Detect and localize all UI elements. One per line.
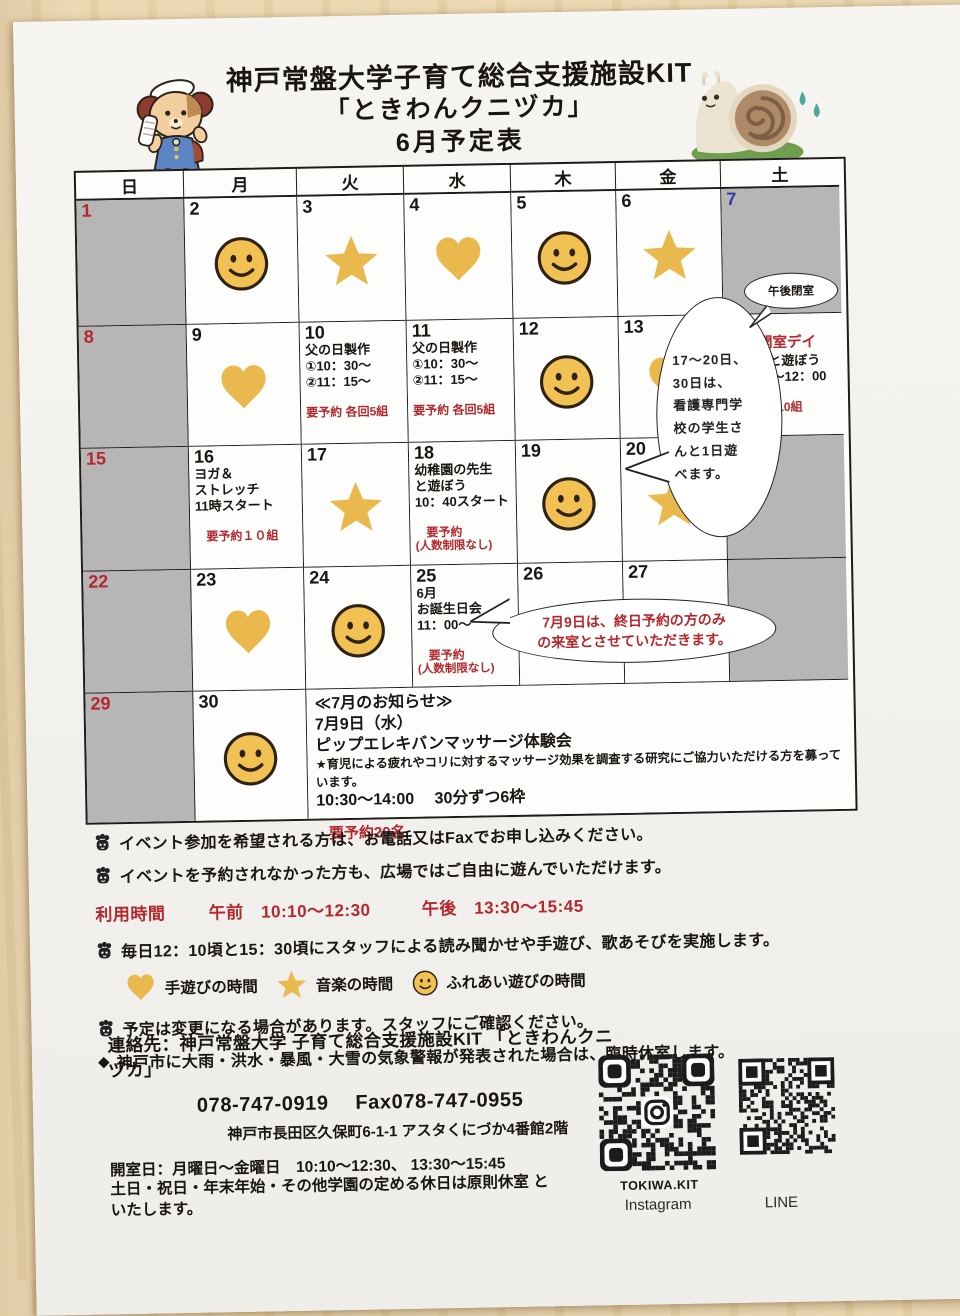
smiley-icon: [411, 969, 438, 996]
day-number: 11: [412, 321, 431, 341]
calendar-cell-8: 8: [79, 325, 189, 449]
event-line: 11時スタート: [192, 497, 301, 515]
event-line: (人数制限なし): [415, 661, 518, 677]
activity-icon-wrap: [514, 317, 620, 440]
smiley-icon: [539, 474, 598, 533]
heart-icon: [216, 360, 271, 415]
day-number: 15: [86, 449, 106, 469]
speech-bubble-tail: [470, 593, 511, 628]
opening-hours-line: 利用時間 午前 10:10～12:30 午後 13:30～15:45: [95, 885, 925, 925]
weekday-header-木: 木: [511, 163, 616, 193]
event-line: ②11：15～: [409, 371, 512, 389]
weekday-header-水: 水: [404, 165, 511, 195]
contact-name: 連絡先：神戸常盤大学 子育て総合支援施設KIT 「ときわんクニヅカ」: [108, 1023, 629, 1083]
calendar-cell-9: 9: [187, 323, 302, 447]
note-row: 毎日12：10頃と15：30頃にスタッフによる読み聞かせや手遊び、歌あそびを実施…: [96, 923, 926, 962]
activity-icon-wrap: [616, 189, 722, 316]
star-icon: [640, 226, 699, 285]
smiley-icon: [329, 601, 388, 660]
heart-icon: [431, 232, 486, 287]
smiley-icon: [221, 729, 280, 788]
legend-label: 音楽の時間: [316, 972, 394, 995]
calendar-cell-19: 19: [516, 439, 623, 564]
calendar-cell-15: 15: [81, 447, 191, 572]
calendar-cell-29: 29: [85, 692, 195, 823]
weekday-header-月: 月: [184, 169, 297, 199]
event-line: 要予約１０組: [192, 527, 301, 544]
calendar-cell-2: 2: [184, 197, 299, 325]
calendar-cell-4: 4: [404, 193, 513, 321]
instagram-label: Instagram: [625, 1196, 692, 1214]
speech-oval-tail: [747, 305, 773, 329]
weekday-header-土: 土: [721, 159, 839, 189]
bubble-line: の来室とさせていただきます。: [537, 629, 732, 653]
event-line: ①10：30～: [302, 357, 405, 375]
activity-icon-wrap: [184, 197, 298, 324]
note-text: 毎日12：10頃と15：30頃にスタッフによる読み聞かせや手遊び、歌あそびを実施…: [121, 926, 780, 962]
day-number: 18: [414, 443, 434, 463]
activity-icon-wrap: [191, 568, 305, 691]
weekday-header-金: 金: [616, 161, 721, 191]
activity-icon-wrap: [304, 566, 412, 689]
contact-address: 神戸市長田区久保町6-1-1 アスタくにづか4番館2階: [227, 1116, 629, 1144]
event-line: 要予約 各回5組: [303, 403, 406, 420]
weekday-header-日: 日: [76, 171, 184, 201]
smiley-icon: [212, 234, 271, 293]
july-notice-cell: ≪7月のお知らせ≫7月9日（水）ピップエレキバンマッサージ体験会★育児による疲れ…: [306, 680, 850, 819]
afternoon-closed-speech-oval: 午後閉室: [744, 272, 839, 310]
bubble-line: んと1日遊: [674, 439, 782, 464]
activity-icon-wrap: [193, 690, 307, 821]
event-line: と遊ぼう: [411, 477, 514, 495]
star-icon: [322, 232, 381, 291]
hours-pm: 午後 13:30～15:45: [422, 897, 584, 919]
calendar-cell-24: 24: [304, 566, 413, 690]
calendar-cell-11: 11父の日製作①10：30～②11：15～要予約 各回5組: [407, 319, 516, 443]
star-icon: [326, 478, 385, 537]
day-number: 16: [194, 447, 214, 467]
smiley-icon: [537, 352, 596, 411]
note-text: イベントを予約されなかった方も、広場ではご自由に遊んでいただけます。: [119, 853, 671, 887]
note-text: イベント参加を希望される方は、お電話又はFaxでお申し込みください。: [119, 820, 653, 854]
activity-icon-wrap: [302, 443, 410, 567]
bubble-line: 校の学生さ: [673, 416, 781, 441]
day-number: 29: [90, 694, 110, 714]
day-number: 1: [81, 202, 91, 222]
poster-title: 神戸常盤大学子育て総合支援施設KIT 「ときわんクニヅカ」 6月予定表: [179, 57, 741, 163]
line-qr-code: [738, 1057, 836, 1155]
day-number: 7: [726, 190, 736, 210]
event-line: 要予約 各回5組: [410, 401, 513, 418]
event-line: ②11：15～: [303, 373, 406, 391]
instagram-qr-caption: TOKIWA.KIT: [600, 1177, 718, 1193]
note-row: イベントを予約されなかった方も、広場ではご自由に遊んでいただけます。: [94, 848, 924, 887]
bubble-line: べます。: [674, 461, 782, 486]
calendar-cell-5: 5: [511, 191, 618, 319]
day-number: 8: [84, 328, 94, 348]
speech-bubble-tail: [625, 448, 670, 487]
calendar-cell-17: 17: [302, 443, 411, 568]
legend-label: 手遊びの時間: [165, 975, 258, 999]
event-text: 父の日製作①10：30～②11：15～要予約 各回5組: [409, 339, 513, 418]
activity-icon-wrap: [404, 193, 512, 320]
heart-icon: [221, 605, 276, 660]
calendar-cell-16: 16ヨガ＆ストレッチ11時スタート要予約１０組: [189, 445, 304, 570]
event-line: 幼稚園の先生: [411, 461, 514, 479]
activity-icon-wrap: [516, 439, 622, 563]
calendar-cell-22: 22: [83, 570, 193, 694]
line-qr-block: [738, 1057, 836, 1160]
calendar-cell-30: 30: [193, 690, 308, 821]
day-number: 22: [88, 572, 108, 592]
star-icon: [275, 969, 308, 1002]
icon-legend: 手遊びの時間音楽の時間ふれあい遊びの時間: [124, 957, 926, 1004]
calendar-cell-18: 18幼稚園の先生と遊ぼう10：40スタート要予約(人数制限なし): [409, 441, 518, 566]
calendar-cell-10: 10父の日製作①10：30～②11：15～要予約 各回5組: [300, 321, 409, 445]
event-line: (人数制限なし): [413, 538, 516, 554]
calendar-cell-12: 12: [514, 317, 621, 441]
bubble-line: 17～20日、: [672, 348, 780, 373]
event-text: 父の日製作①10：30～②11：15～要予約 各回5組: [302, 341, 406, 420]
weekday-header-火: 火: [297, 167, 404, 197]
smiley-icon: [535, 228, 594, 287]
mascot-bullet-icon: [96, 941, 113, 960]
mascot-bullet-icon: [94, 833, 111, 852]
calendar-cell-1: 1: [76, 199, 186, 327]
calendar-cell-7: 7午後閉室: [721, 187, 841, 315]
poster-paper: 神戸常盤大学子育て総合支援施設KIT 「ときわんクニヅカ」 6月予定表 日月火水…: [13, 4, 960, 1316]
activity-icon-wrap: [187, 323, 301, 446]
event-text: 幼稚園の先生と遊ぼう10：40スタート要予約(人数制限なし): [411, 461, 516, 554]
contact-section: 連絡先：神戸常盤大学 子育て総合支援施設KIT 「ときわんクニヅカ」 078-7…: [108, 1023, 631, 1222]
event-line: 10：40スタート: [412, 493, 515, 511]
day-number: 25: [416, 566, 436, 586]
snail-illustration: [674, 69, 826, 170]
activity-icon-wrap: [297, 195, 405, 322]
bubble-line: 看護専門学: [673, 393, 781, 418]
contact-phone-fax: 078-747-0919 Fax078-747-0955: [197, 1081, 629, 1118]
event-text: ヨガ＆ストレッチ11時スタート要予約１０組: [191, 465, 301, 544]
activity-icon-wrap: [511, 191, 617, 318]
bubble-line: 30日は、: [673, 370, 781, 395]
mascot-bullet-icon: [94, 866, 111, 885]
heart-icon: [124, 972, 157, 1005]
event-line: 父の日製作: [302, 341, 405, 359]
line-label: LINE: [765, 1194, 799, 1212]
instagram-qr-block: TOKIWA.KIT: [598, 1053, 719, 1193]
hours-label: 利用時間: [95, 904, 165, 924]
calendar-cell-23: 23: [191, 568, 306, 692]
event-line: 父の日製作: [409, 339, 512, 357]
legend-label: ふれあい遊びの時間: [446, 969, 586, 994]
instagram-qr-code: [598, 1053, 716, 1171]
hours-am: 午前 10:10～12:30: [208, 901, 370, 923]
event-line: ①10：30～: [409, 355, 512, 373]
day-number: 10: [305, 323, 325, 343]
calendar-cell-3: 3: [297, 195, 406, 323]
